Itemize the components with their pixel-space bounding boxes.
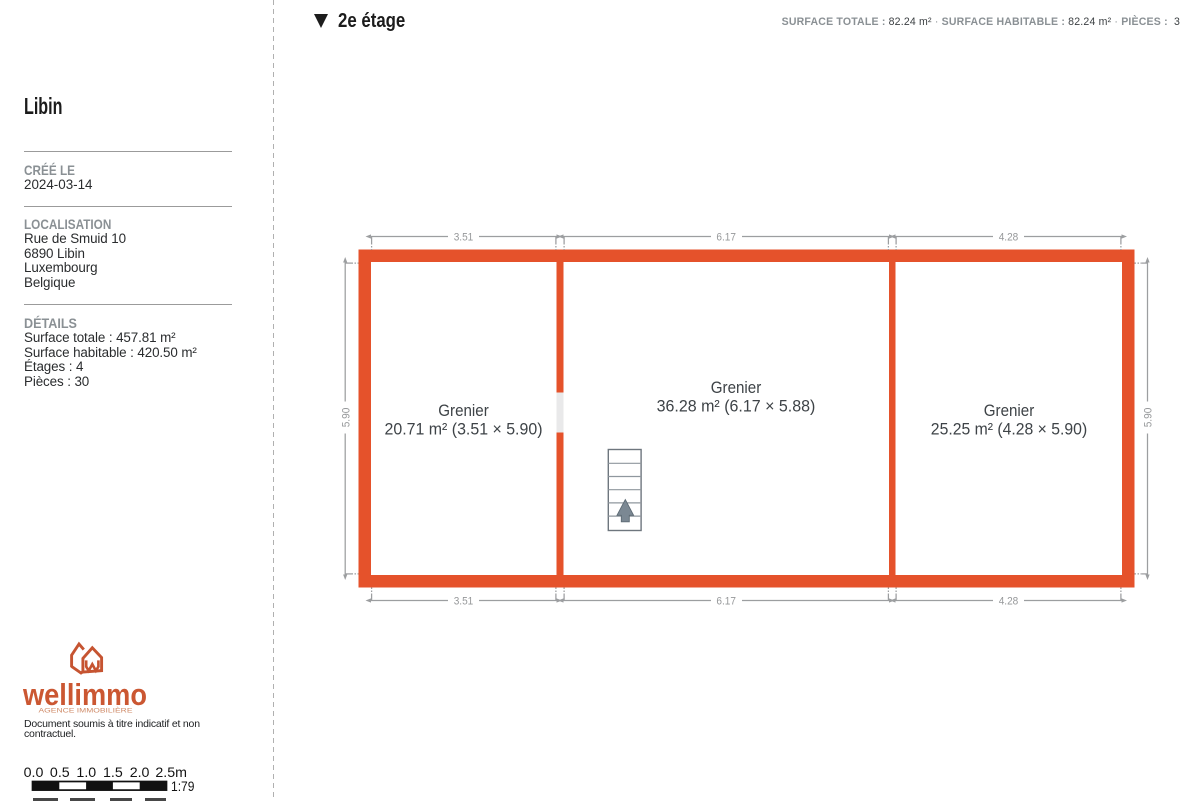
svg-text:Grenier: Grenier <box>984 401 1035 420</box>
svg-text:3.51: 3.51 <box>454 596 474 608</box>
svg-text:6.17: 6.17 <box>716 596 736 608</box>
svg-text:3.51: 3.51 <box>454 232 474 244</box>
svg-text:5.90: 5.90 <box>340 408 352 428</box>
svg-text:36.28 m² (6.17 × 5.88): 36.28 m² (6.17 × 5.88) <box>657 397 816 416</box>
svg-text:Grenier: Grenier <box>438 401 489 420</box>
svg-text:Grenier: Grenier <box>711 378 762 397</box>
svg-text:6.17: 6.17 <box>716 232 736 244</box>
svg-text:25.25 m² (4.28 × 5.90): 25.25 m² (4.28 × 5.90) <box>931 420 1087 439</box>
svg-text:5.90: 5.90 <box>1143 408 1155 428</box>
svg-text:20.71 m² (3.51 × 5.90): 20.71 m² (3.51 × 5.90) <box>385 420 543 439</box>
svg-text:4.28: 4.28 <box>999 232 1019 244</box>
svg-text:4.28: 4.28 <box>999 596 1019 608</box>
